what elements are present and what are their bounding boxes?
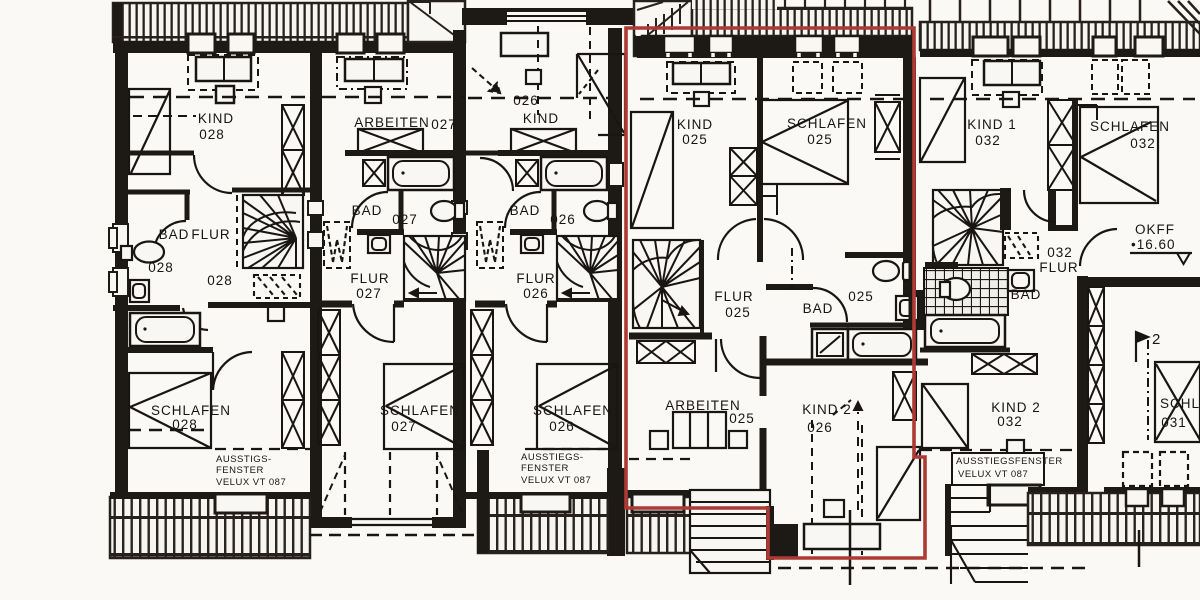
- svg-text:AUSSTIEGSFENSTER: AUSSTIEGSFENSTER: [956, 456, 1063, 467]
- svg-text:032: 032: [997, 414, 1023, 429]
- svg-text:032: 032: [1130, 136, 1156, 151]
- svg-text:026: 026: [513, 93, 539, 108]
- svg-text:027: 027: [431, 117, 457, 132]
- svg-text:OKFF: OKFF: [1135, 222, 1175, 237]
- svg-text:SCHLAFEN: SCHLAFEN: [533, 403, 613, 418]
- svg-text:026: 026: [550, 212, 576, 227]
- svg-text:BAD: BAD: [159, 227, 190, 242]
- svg-text:SCHLAFEN: SCHLAFEN: [380, 403, 460, 418]
- svg-text:FLUR: FLUR: [516, 271, 555, 286]
- svg-text:BAD: BAD: [803, 301, 834, 316]
- svg-text:FENSTER: FENSTER: [216, 465, 264, 476]
- svg-text:VELUX VT 087: VELUX VT 087: [216, 477, 286, 488]
- svg-text:KIND: KIND: [523, 111, 559, 126]
- svg-text:BAD: BAD: [352, 203, 383, 218]
- svg-text:SCHLAFEN: SCHLAFEN: [1090, 119, 1170, 134]
- svg-text:026: 026: [549, 419, 575, 434]
- svg-text:025: 025: [729, 411, 755, 426]
- svg-text:KIND 2: KIND 2: [991, 400, 1041, 415]
- svg-text:027: 027: [356, 286, 382, 301]
- svg-text:025: 025: [725, 305, 751, 320]
- svg-text:AUSSTIEGS-: AUSSTIEGS-: [521, 452, 584, 463]
- svg-text:025: 025: [807, 132, 833, 147]
- svg-text:KIND 2: KIND 2: [802, 402, 852, 417]
- svg-text:025: 025: [682, 132, 708, 147]
- svg-text:028: 028: [207, 273, 233, 288]
- svg-text:028: 028: [148, 260, 174, 275]
- svg-text:VELUX VT 087: VELUX VT 087: [521, 475, 591, 486]
- svg-text:027: 027: [392, 212, 418, 227]
- svg-text:2: 2: [1152, 331, 1161, 348]
- svg-text:•16.60: •16.60: [1131, 237, 1176, 252]
- svg-text:SCHLAFE: SCHLAFE: [1160, 396, 1200, 411]
- svg-text:027: 027: [391, 419, 417, 434]
- svg-text:032: 032: [1047, 245, 1073, 260]
- svg-text:SCHLAFEN: SCHLAFEN: [787, 116, 867, 131]
- svg-text:FLUR: FLUR: [714, 289, 753, 304]
- svg-text:KIND: KIND: [198, 111, 234, 126]
- svg-text:026: 026: [523, 286, 549, 301]
- svg-text:KIND 1: KIND 1: [967, 117, 1017, 132]
- svg-text:028: 028: [199, 127, 225, 142]
- svg-text:SCHLAFEN: SCHLAFEN: [151, 403, 231, 418]
- svg-text:KIND: KIND: [677, 117, 713, 132]
- svg-text:025: 025: [848, 289, 874, 304]
- svg-text:028: 028: [172, 417, 198, 432]
- svg-text:031: 031: [1161, 415, 1187, 430]
- svg-text:026: 026: [807, 420, 833, 435]
- svg-text:VELUX VT 087: VELUX VT 087: [958, 469, 1028, 480]
- svg-text:ARBEITEN: ARBEITEN: [354, 115, 430, 130]
- svg-text:BAD: BAD: [1011, 287, 1042, 302]
- svg-text:FLUR: FLUR: [350, 271, 389, 286]
- svg-text:032: 032: [975, 133, 1001, 148]
- svg-text:FLUR: FLUR: [1039, 260, 1078, 275]
- svg-text:BAD: BAD: [510, 203, 541, 218]
- svg-text:AUSSTIGS-: AUSSTIGS-: [216, 454, 272, 465]
- svg-text:FLUR: FLUR: [191, 227, 230, 242]
- svg-text:FENSTER: FENSTER: [521, 463, 569, 474]
